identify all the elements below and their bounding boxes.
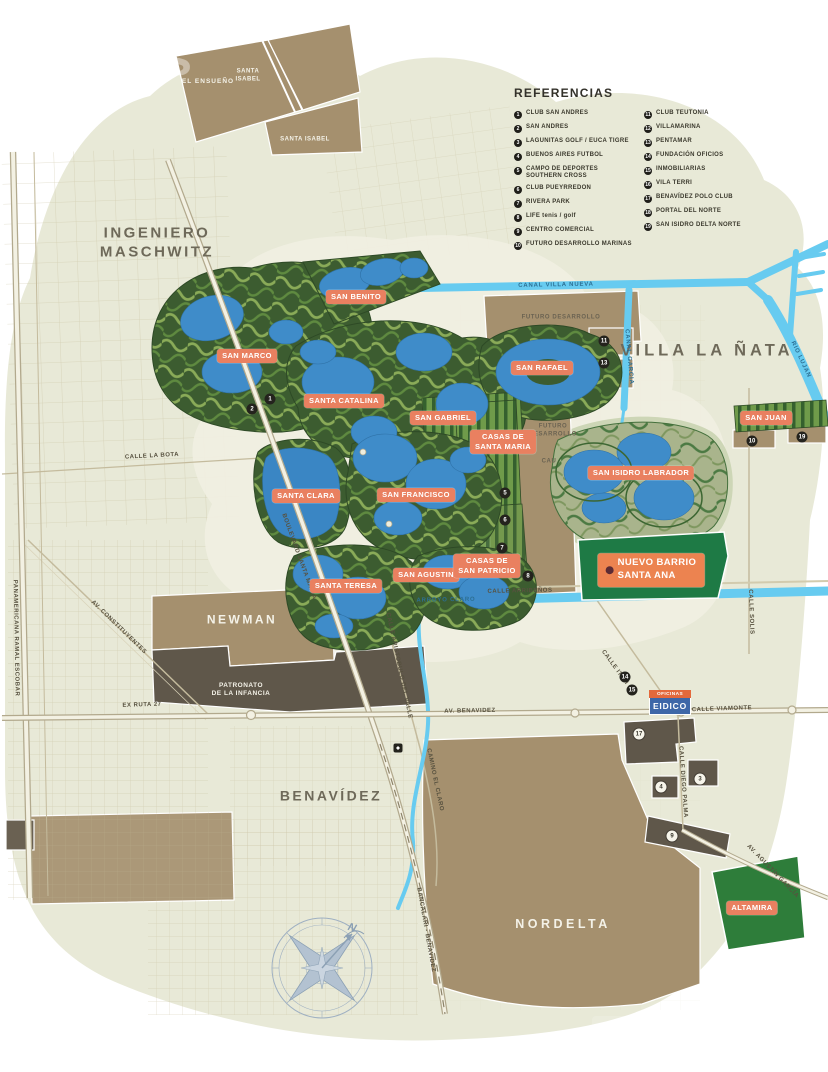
legend-item-label: BUENOS AIRES FUTBOL <box>526 152 603 159</box>
reference-marker-7: 7 <box>497 543 508 554</box>
legend-item-number: 12 <box>644 125 652 133</box>
legend-item-number: 9 <box>514 228 522 236</box>
legend-item-label: LAGUNITAS GOLF / EUCA TIGRE <box>526 138 629 145</box>
reference-marker-3: 3 <box>695 774 706 785</box>
legend-item-label: CLUB PUEYRREDON <box>526 185 591 192</box>
eidico-office-badge: OFICINAS EIDICO <box>649 690 691 715</box>
reference-marker-10: 10 <box>747 436 758 447</box>
legend-item: 5CAMPO DE DEPORTES SOUTHERN CROSS <box>514 166 634 180</box>
legend-item-number: 6 <box>514 186 522 194</box>
reference-marker-14: 14 <box>620 672 631 683</box>
legend-item: 18PORTAL DEL NORTE <box>644 208 764 217</box>
legend-item-number: 13 <box>644 139 652 147</box>
legend-item-number: 14 <box>644 153 652 161</box>
legend-item: 3LAGUNITAS GOLF / EUCA TIGRE <box>514 138 634 147</box>
reference-marker-8: 8 <box>523 571 534 582</box>
legend-item-number: 19 <box>644 223 652 231</box>
legend: REFERENCIAS 1CLUB SAN ANDRES2SAN ANDRES3… <box>514 86 776 255</box>
legend-item-number: 16 <box>644 181 652 189</box>
legend-item-number: 2 <box>514 125 522 133</box>
legend-item-number: 5 <box>514 167 522 175</box>
reference-marker-15: 15 <box>627 685 638 696</box>
legend-item: 11CLUB TEUTONIA <box>644 110 764 119</box>
eidico-office-sign: EIDICO <box>649 698 691 715</box>
legend-item-number: 10 <box>514 242 522 250</box>
legend-item-label: BENAVÍDEZ POLO CLUB <box>656 194 733 201</box>
legend-item: 12VILLAMARINA <box>644 124 764 133</box>
legend-item-number: 4 <box>514 153 522 161</box>
legend-item-label: RIVERA PARK <box>526 199 570 206</box>
legend-item-number: 8 <box>514 214 522 222</box>
legend-item-label: CENTRO COMERCIAL <box>526 227 594 234</box>
legend-item-label: CLUB SAN ANDRES <box>526 110 588 117</box>
legend-item-number: 15 <box>644 167 652 175</box>
legend-item-label: LIFE tenis / golf <box>526 213 576 220</box>
reference-marker-9: 9 <box>667 831 678 842</box>
legend-item: 14FUNDACIÓN OFICIOS <box>644 152 764 161</box>
watermark-bottom <box>592 1016 822 1052</box>
reference-marker-4: 4 <box>656 782 667 793</box>
legend-item: 17BENAVÍDEZ POLO CLUB <box>644 194 764 203</box>
reference-marker-19: 19 <box>797 432 808 443</box>
legend-item-label: FUNDACIÓN OFICIOS <box>656 152 723 159</box>
watermark-text: tos <box>110 28 194 88</box>
reference-marker-1: 1 <box>265 394 276 405</box>
legend-item: 16VILA TERRI <box>644 180 764 189</box>
legend-item-label: VILA TERRI <box>656 180 692 187</box>
reference-marker-6: 6 <box>500 515 511 526</box>
legend-item: 1CLUB SAN ANDRES <box>514 110 634 119</box>
reference-marker-5: 5 <box>500 488 511 499</box>
legend-column: 1CLUB SAN ANDRES2SAN ANDRES3LAGUNITAS GO… <box>514 110 634 255</box>
station-icon <box>394 744 403 753</box>
real-estate-area-map: tos REFERENCIAS 1CLUB SAN ANDRES2SAN AND… <box>0 0 828 1072</box>
reference-marker-2: 2 <box>247 404 258 415</box>
legend-title: REFERENCIAS <box>514 86 776 100</box>
reference-marker-11: 11 <box>599 336 610 347</box>
legend-item-number: 3 <box>514 139 522 147</box>
legend-item: 19SAN ISIDRO DELTA NORTE <box>644 222 764 231</box>
legend-columns: 1CLUB SAN ANDRES2SAN ANDRES3LAGUNITAS GO… <box>514 110 776 255</box>
legend-item-number: 1 <box>514 111 522 119</box>
reference-marker-17: 17 <box>634 729 645 740</box>
legend-item-number: 17 <box>644 195 652 203</box>
reference-marker-13: 13 <box>599 358 610 369</box>
legend-item: 10FUTURO DESARROLLO MARINAS <box>514 241 634 250</box>
legend-item-label: PORTAL DEL NORTE <box>656 208 721 215</box>
legend-item-label: FUTURO DESARROLLO MARINAS <box>526 241 632 248</box>
legend-item: 9CENTRO COMERCIAL <box>514 227 634 236</box>
legend-item-label: INMOBILIARIAS <box>656 166 706 173</box>
legend-item-label: CAMPO DE DEPORTES SOUTHERN CROSS <box>526 166 598 180</box>
legend-item-label: PENTAMAR <box>656 138 692 145</box>
legend-item-label: SAN ISIDRO DELTA NORTE <box>656 222 741 229</box>
legend-item-number: 18 <box>644 209 652 217</box>
legend-item: 2SAN ANDRES <box>514 124 634 133</box>
legend-item-number: 11 <box>644 111 652 119</box>
legend-item-number: 7 <box>514 200 522 208</box>
legend-item: 8LIFE tenis / golf <box>514 213 634 222</box>
eidico-office-tag: OFICINAS <box>649 690 691 698</box>
legend-item: 4BUENOS AIRES FUTBOL <box>514 152 634 161</box>
legend-item: 15INMOBILIARIAS <box>644 166 764 175</box>
legend-item: 13PENTAMAR <box>644 138 764 147</box>
legend-item-label: VILLAMARINA <box>656 124 701 131</box>
legend-item-label: CLUB TEUTONIA <box>656 110 709 117</box>
legend-item: 6CLUB PUEYRREDON <box>514 185 634 194</box>
legend-item: 7RIVERA PARK <box>514 199 634 208</box>
legend-item-label: SAN ANDRES <box>526 124 568 131</box>
legend-column: 11CLUB TEUTONIA12VILLAMARINA13PENTAMAR14… <box>644 110 764 255</box>
